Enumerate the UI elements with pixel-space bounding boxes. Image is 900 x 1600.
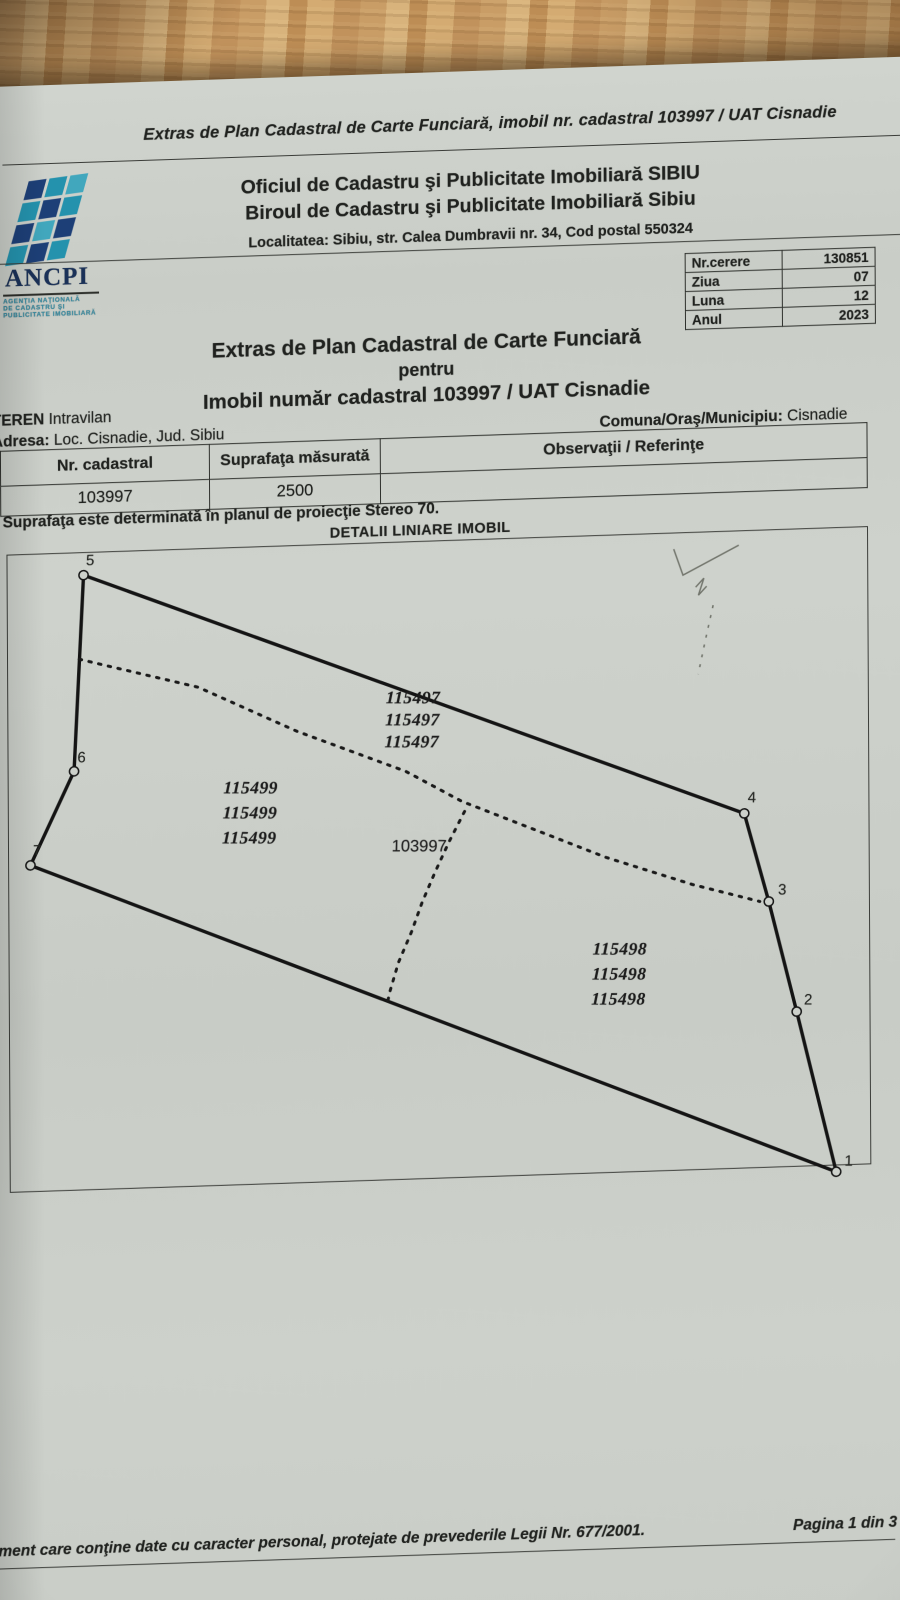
svg-text:115497: 115497 [385, 709, 441, 729]
request-table: Nr.cerere 130851 Ziua 07 Luna 12 Anul 20… [685, 247, 876, 330]
privacy-note: Document care conţine date cu caracter p… [0, 1522, 645, 1563]
svg-text:103997: 103997 [391, 837, 447, 855]
svg-text:1: 1 [844, 1153, 853, 1170]
plan-svg: 1154971154971154971154991154991154991039… [7, 527, 870, 1192]
page-number: Pagina 1 din 3 [793, 1514, 897, 1535]
ancpi-logo-subtext: AGENŢIA NAŢIONALĂ DE CADASTRU ŞI PUBLICI… [3, 294, 153, 320]
svg-text:115499: 115499 [223, 802, 278, 822]
svg-text:4: 4 [747, 789, 756, 806]
svg-text:115499: 115499 [223, 777, 278, 797]
svg-text:3: 3 [778, 881, 787, 898]
svg-text:115499: 115499 [222, 827, 277, 847]
document-paper: Extras de Plan Cadastral de Carte Funcia… [0, 55, 900, 1600]
svg-text:6: 6 [77, 749, 86, 766]
svg-text:115498: 115498 [592, 939, 647, 959]
photo-scene: Extras de Plan Cadastral de Carte Funcia… [0, 0, 900, 1600]
svg-text:5: 5 [86, 552, 95, 569]
svg-text:115497: 115497 [386, 687, 442, 707]
request-value: 2023 [782, 304, 875, 326]
doc-header-line: Extras de Plan Cadastral de Carte Funcia… [140, 103, 840, 145]
svg-text:2: 2 [804, 992, 813, 1009]
plan-box: 1154971154971154971154991154991154991039… [6, 526, 871, 1193]
svg-text:115498: 115498 [591, 989, 646, 1009]
svg-text:115497: 115497 [384, 731, 440, 751]
footer: Document care conţine date cu caracter p… [0, 1514, 897, 1563]
ancpi-logo-text: ANCPI [3, 262, 99, 296]
svg-text:115498: 115498 [592, 964, 647, 984]
svg-text:7: 7 [33, 842, 42, 859]
col-header-suprafata: Suprafaţa măsurată [209, 439, 380, 480]
office-block: Oficiul de Cadastru şi Publicitate Imobi… [70, 156, 870, 258]
